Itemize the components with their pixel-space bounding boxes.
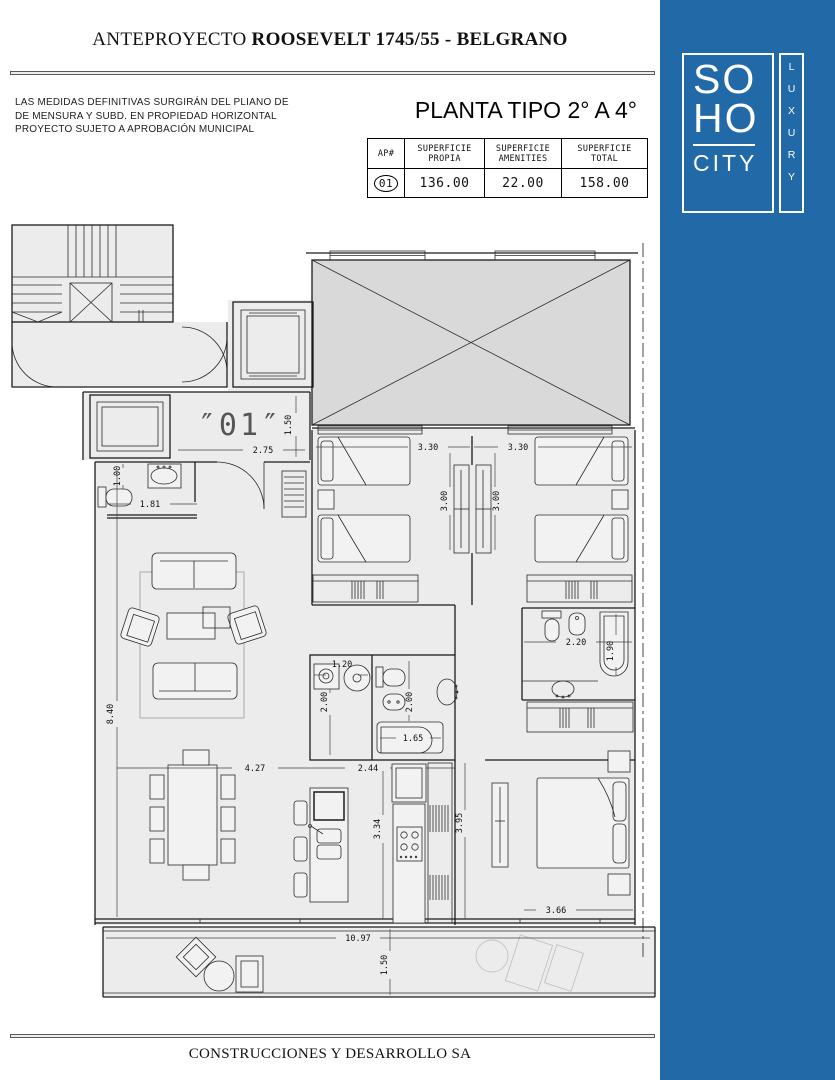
chair [150,839,164,863]
dim-label: 1.65 [403,734,423,744]
areas-table-row: 01 136.00 22.00 158.00 [368,169,648,198]
cell-total: 158.00 [562,169,648,198]
dim-label: 3.00 [440,491,450,511]
unit-number-badge: 01 [374,175,398,192]
dim-label: 1.00 [113,466,123,486]
double-bed [537,778,629,868]
dim-label: 2.00 [405,692,415,712]
dim-label: 1.90 [606,641,616,661]
logo-line-city: CITY [693,150,772,177]
chair [221,775,235,799]
coffee-table [167,613,215,639]
developer-name: CONSTRUCCIONES Y DESARROLLO SA [0,1046,660,1063]
sheet-title-project: ROOSEVELT 1745/55 - BELGRANO [252,29,568,50]
bed [318,437,410,485]
nightstand [318,490,334,509]
toilet [542,611,561,618]
dim-label: 2.44 [358,764,378,774]
luxury-label: LUXURY [786,61,798,193]
balcony-chair [236,956,263,992]
dim-label: 1.50 [284,415,294,435]
dim-label: 1.20 [332,660,352,670]
sheet-title: ANTEPROYECTO ROOSEVELT 1745/55 - BELGRAN… [0,29,660,51]
disclaimer-line: LAS MEDIDAS DEFINITIVAS SURGIRÁN DEL PLI… [15,96,315,110]
header-divider [10,71,655,75]
floor-title: PLANTA TIPO 2° A 4° [357,97,637,124]
dim-label: 3.00 [492,491,502,511]
dim-label: 8.40 [106,704,116,724]
kitchen-counter [393,804,425,923]
chair [183,750,209,765]
luxury-badge: LUXURY [779,53,804,213]
toilet [376,667,383,687]
col-ap: AP# [368,139,405,169]
bidet [383,694,405,710]
cell-ap: 01 [368,169,405,198]
unit-label: ″01″ [198,408,282,443]
logo-divider [693,144,755,146]
chair [150,775,164,799]
nightstand [612,490,628,509]
cell-propia: 136.00 [405,169,485,198]
floor-plan: ″01″ 2.75 1.50 1.00 1.81 [0,215,660,1035]
col-superficie-amenities: SUPERFICIEAMENITIES [485,139,562,169]
chair [221,807,235,831]
areas-table: AP# SUPERFICIEPROPIA SUPERFICIEAMENITIES… [367,138,648,198]
stool [294,873,307,897]
areas-table-header-row: AP# SUPERFICIEPROPIA SUPERFICIEAMENITIES… [368,139,648,169]
soho-city-logo: SO HO CITY [682,53,774,213]
stool [294,837,307,861]
nightstand [608,874,630,895]
disclaimer-line: DE MENSURA Y SUBD. EN PROPIEDAD HORIZONT… [15,110,315,124]
chair [150,807,164,831]
plan-sheet: ANTEPROYECTO ROOSEVELT 1745/55 - BELGRAN… [0,0,835,1080]
legal-disclaimer: LAS MEDIDAS DEFINITIVAS SURGIRÁN DEL PLI… [15,96,315,137]
col-superficie-total: SUPERFICIETOTAL [562,139,648,169]
stool [294,801,307,825]
dim-label: 4.27 [245,764,265,774]
disclaimer-line: PROYECTO SUJETO A APROBACIÓN MUNICIPAL [15,123,315,137]
footer-divider [10,1034,655,1038]
dim-label: 2.00 [320,692,330,712]
dim-label: 10.97 [345,934,371,944]
dim-label: 3.95 [455,813,465,833]
dim-label: 1.50 [380,955,390,975]
dim-label: 2.75 [253,446,273,456]
nightstand [608,751,630,772]
fridge [392,764,426,802]
bed [535,437,628,485]
dim-label: 3.34 [373,819,383,839]
logo-line-so: SO [693,60,772,99]
dim-label: 3.30 [418,443,438,453]
sheet-title-prefix: ANTEPROYECTO [92,29,246,50]
chair [183,865,209,880]
chair [221,839,235,863]
bed [318,515,410,562]
dim-label: 3.66 [546,906,566,916]
dim-label: 1.81 [140,500,160,510]
cell-amenities: 22.00 [485,169,562,198]
toilet [98,487,106,507]
dining-table [168,765,217,865]
bed [535,515,628,562]
dim-label: 2.20 [566,638,586,648]
dim-label: 3.30 [508,443,528,453]
col-superficie-propia: SUPERFICIEPROPIA [405,139,485,169]
balcony-table [204,961,234,991]
logo-line-ho: HO [693,99,772,138]
